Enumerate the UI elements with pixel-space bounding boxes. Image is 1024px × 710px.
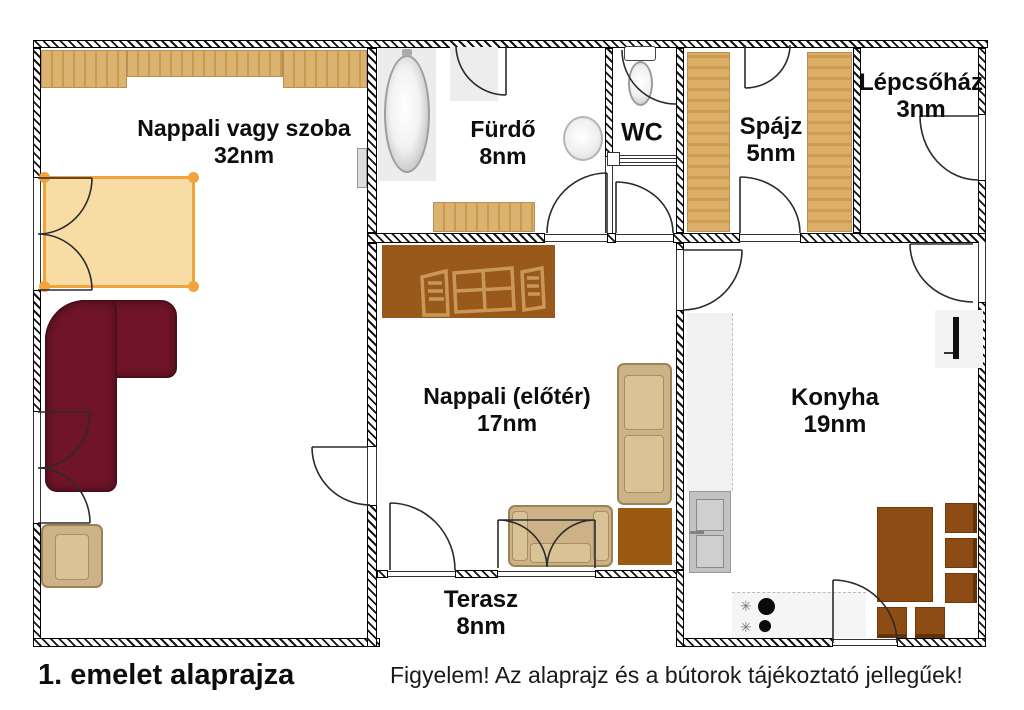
fridge — [689, 491, 731, 573]
toilet-bowl — [628, 61, 653, 106]
loveseat-seat — [530, 543, 591, 563]
bed — [43, 176, 195, 288]
room-name: Lépcsőház — [859, 69, 983, 96]
fridge-door — [696, 499, 724, 531]
wall-segment — [367, 243, 377, 447]
door-eloter-terasz — [390, 503, 455, 570]
door-opening — [545, 234, 607, 242]
chair — [915, 607, 945, 638]
sofa — [617, 363, 672, 505]
pantry-shelf — [807, 52, 852, 232]
room-area: 3nm — [859, 96, 983, 123]
room-label-wc: WC — [621, 120, 663, 147]
wardrobe-top-right — [283, 50, 367, 88]
wall-segment — [676, 310, 684, 570]
wall-segment — [33, 638, 380, 647]
door-kitchen-eloter — [683, 250, 742, 310]
bed-handle — [188, 172, 199, 183]
wall-segment — [455, 570, 498, 578]
wall-segment — [377, 570, 388, 578]
wall-segment — [595, 570, 677, 578]
bath-rug — [433, 202, 535, 232]
disclaimer-text: Figyelem! Az alaprajz és a bútorok tájék… — [390, 662, 963, 689]
wall-segment — [607, 233, 616, 243]
burner-knob-icon: ✳ — [740, 620, 752, 634]
room-area: 32nm — [137, 142, 350, 169]
room-name: Nappali (előtér) — [423, 383, 590, 410]
chair — [945, 538, 977, 568]
door-opening — [676, 250, 684, 310]
wall-segment — [605, 48, 613, 157]
stove-burner — [759, 620, 771, 632]
room-name: Fürdő — [470, 116, 535, 143]
door-opening — [978, 115, 986, 180]
door-swing-shade — [450, 47, 498, 101]
door-bath-bottom — [547, 173, 607, 233]
sliding-door-track — [613, 162, 676, 166]
room-area: 5nm — [740, 140, 803, 167]
wall-segment — [367, 505, 377, 647]
wall-segment — [367, 233, 545, 243]
door-spajz-top — [745, 45, 790, 88]
fridge-handle — [690, 531, 704, 534]
corner-sofa — [45, 300, 117, 492]
door-stairs — [920, 116, 978, 180]
sofa-cushion — [624, 375, 664, 430]
room-label-nappali-szoba: Nappali vagy szoba 32nm — [137, 115, 350, 169]
door-opening — [978, 242, 986, 302]
room-name: Konyha — [791, 384, 879, 411]
room-label-lepcsohaz: Lépcsőház 3nm — [859, 69, 983, 123]
french-door-opening — [498, 571, 595, 577]
wall-segment — [33, 290, 41, 412]
radiator — [357, 148, 367, 188]
partition-thin-wall — [605, 157, 613, 233]
sink — [563, 116, 603, 161]
room-area: 17nm — [423, 410, 590, 437]
room-label-terasz: Terasz 8nm — [444, 586, 518, 640]
room-area: 8nm — [470, 143, 535, 170]
wall-segment — [897, 638, 986, 647]
radiator-bar — [953, 317, 959, 359]
wall-segment — [676, 243, 684, 250]
bathtub — [384, 55, 430, 173]
door-opening — [833, 639, 897, 646]
wall-segment — [676, 48, 684, 233]
bed-handle — [188, 281, 199, 292]
loveseat — [508, 505, 613, 567]
room-name: Spájz — [740, 113, 803, 140]
wall-segment — [800, 233, 986, 243]
room-label-nappali-eloter: Nappali (előtér) 17nm — [423, 383, 590, 437]
window-opening — [33, 412, 41, 523]
room-area: 8nm — [444, 613, 518, 640]
stove: ✳ ✳ — [732, 592, 866, 638]
loveseat-arm — [512, 511, 528, 561]
wall-segment — [676, 570, 684, 647]
radiator — [935, 310, 983, 368]
floor-plan-title: 1. emelet alaprajza — [38, 659, 294, 692]
door-opening — [388, 571, 455, 577]
room-label-furdo: Fürdő 8nm — [470, 116, 535, 170]
stove-burner — [758, 598, 775, 615]
wardrobe-cabinet — [382, 245, 555, 318]
wall-segment — [677, 638, 833, 647]
wall-segment — [33, 48, 41, 178]
room-name: WC — [621, 120, 663, 147]
fridge-door — [696, 535, 724, 568]
chair — [945, 573, 977, 603]
room-label-konyha: Konyha 19nm — [791, 384, 879, 438]
room-label-spajz: Spájz 5nm — [740, 113, 803, 167]
sliding-door-track — [613, 155, 676, 159]
radiator-valve — [944, 352, 953, 354]
room-name: Terasz — [444, 586, 518, 613]
wardrobe-top-middle — [127, 50, 283, 77]
storage-box — [618, 508, 672, 565]
room-area: 19nm — [791, 411, 879, 438]
room-name: Nappali vagy szoba — [137, 115, 350, 142]
armchair-seat — [55, 534, 89, 580]
dining-table — [877, 507, 933, 602]
wall-segment — [33, 523, 41, 647]
toilet-tank — [624, 46, 656, 61]
bed-handle — [39, 281, 50, 292]
bed-handle — [39, 172, 50, 183]
bathtub-faucet — [402, 49, 412, 56]
door-vestibule — [616, 182, 673, 233]
pantry-shelf — [687, 52, 730, 232]
kitchen-counter — [687, 313, 733, 491]
chair — [945, 503, 977, 533]
window-opening — [33, 178, 41, 290]
wardrobe-top-left — [41, 50, 127, 88]
armchair — [41, 524, 103, 588]
loveseat-arm — [593, 511, 609, 561]
wall-segment — [33, 40, 988, 48]
door-opening — [740, 234, 800, 242]
door-bigroom-eloter — [312, 447, 370, 505]
sofa-cushion — [624, 435, 664, 493]
floor-plan: ✳ ✳ Nappali vagy szoba 32nm Fürdő 8nm — [0, 0, 1024, 710]
door-opening — [367, 447, 377, 505]
wall-segment — [673, 233, 740, 243]
chair — [877, 607, 907, 638]
door-opening — [616, 234, 673, 242]
wardrobe-sketch — [382, 245, 555, 318]
door-spajz-bottom — [740, 177, 800, 233]
sliding-door-leaf — [607, 152, 620, 166]
door-kitchen-stairs — [910, 244, 973, 302]
wall-segment — [367, 48, 377, 233]
burner-knob-icon: ✳ — [740, 599, 752, 613]
